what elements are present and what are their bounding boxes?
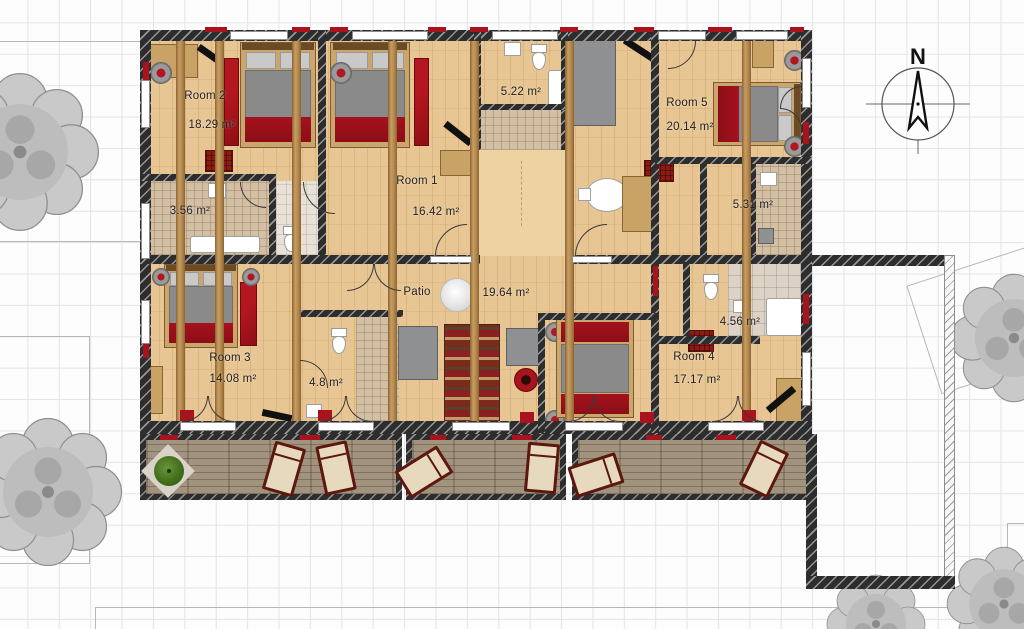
wall-segment [655, 157, 812, 164]
wardrobe[interactable] [572, 40, 616, 126]
window-sill [512, 435, 532, 440]
area-label: 5.22 m² [501, 86, 541, 98]
window-sill [300, 435, 320, 440]
sink[interactable] [760, 172, 777, 186]
window-sill [646, 435, 662, 440]
wall-segment [318, 30, 326, 258]
window-sill [790, 27, 804, 32]
wardrobe[interactable] [150, 366, 163, 414]
round-stool[interactable] [330, 62, 352, 84]
window[interactable] [736, 31, 788, 40]
interior-window[interactable] [430, 256, 472, 263]
wall-segment [293, 310, 403, 317]
window-sill [330, 27, 348, 32]
wall-segment [683, 262, 690, 340]
wall-segment [269, 174, 276, 255]
area-label: 4.56 m² [720, 316, 760, 328]
door-opening[interactable] [318, 422, 374, 431]
area-label: 3.56 m² [170, 205, 210, 217]
tree-icon[interactable] [0, 72, 100, 232]
window-sill [634, 27, 654, 32]
window-sill [470, 27, 488, 32]
wall-segment [140, 174, 276, 181]
window[interactable] [492, 31, 558, 40]
round-stool[interactable] [242, 268, 260, 286]
round-table[interactable] [514, 368, 538, 392]
flower-pot[interactable] [520, 412, 534, 423]
lounge-chair[interactable] [524, 442, 560, 495]
wall-segment [538, 313, 657, 320]
shower-drain[interactable] [758, 228, 774, 244]
beam [388, 41, 397, 421]
wall-segment [140, 255, 480, 264]
counter[interactable] [622, 176, 652, 232]
potted-plant[interactable] [154, 456, 184, 486]
window-sill [292, 27, 310, 32]
toilet[interactable] [530, 44, 548, 70]
flower-pot[interactable] [640, 412, 654, 423]
room-area-label: 20.14 m² [667, 121, 714, 133]
corridor-floor [477, 150, 565, 256]
compass-north-label: N [910, 44, 926, 69]
area-label: 4.8 m² [309, 377, 343, 389]
chair[interactable] [578, 188, 591, 201]
red-door-leaf[interactable] [653, 266, 658, 296]
beam [470, 41, 479, 421]
wall-segment [700, 164, 707, 255]
tree-icon[interactable] [946, 546, 1024, 629]
toilet[interactable] [702, 274, 720, 300]
floorplan-canvas: N [0, 0, 1024, 629]
compass-icon: N [858, 40, 978, 160]
room-area-label: 14.08 m² [210, 373, 257, 385]
door-opening[interactable] [452, 422, 510, 431]
entry-tile-floor [477, 110, 565, 150]
window[interactable] [141, 203, 150, 259]
room-area-label: 16.42 m² [413, 206, 460, 218]
sofa[interactable] [398, 326, 438, 380]
radiator[interactable] [803, 122, 809, 144]
room-area-label: 18.29 m² [189, 119, 236, 131]
wall-segment [538, 313, 545, 433]
courtyard-wall-bottom [806, 576, 955, 589]
door-opening[interactable] [565, 422, 623, 431]
room-area-label: 17.17 m² [674, 374, 721, 386]
window[interactable] [141, 300, 150, 344]
room-name-label: Patio [403, 286, 430, 298]
room-name-label: Room 1 [396, 175, 437, 187]
room-name-label: Room 2 [184, 90, 225, 102]
bedside-rug[interactable] [224, 58, 239, 146]
window-sill [708, 27, 732, 32]
bedside-rug[interactable] [414, 58, 429, 146]
courtyard-wall-left [806, 434, 817, 589]
window[interactable] [141, 80, 150, 128]
sink[interactable] [504, 42, 521, 56]
toilet[interactable] [330, 328, 348, 354]
window-sill [716, 435, 736, 440]
room-area-label: 19.64 m² [483, 287, 530, 299]
round-stool[interactable] [152, 268, 170, 286]
armchair[interactable] [506, 328, 540, 366]
window[interactable] [658, 31, 706, 40]
bathtub[interactable] [766, 298, 802, 336]
double-bed[interactable] [330, 42, 410, 148]
bedside-rug[interactable] [240, 282, 257, 346]
round-rug[interactable] [440, 278, 474, 312]
wall-segment [651, 30, 659, 255]
radiator[interactable] [803, 294, 809, 324]
area-label: 5.31 m² [733, 199, 773, 211]
window-sill [160, 435, 178, 440]
bathtub[interactable] [190, 236, 260, 253]
window[interactable] [352, 31, 428, 40]
interior-window[interactable] [572, 256, 612, 263]
double-bed[interactable] [240, 42, 316, 148]
window[interactable] [802, 352, 811, 406]
room-name-label: Room 3 [209, 352, 250, 364]
desk[interactable] [440, 150, 474, 176]
wall-segment [474, 104, 568, 110]
courtyard-wall-right [944, 255, 955, 589]
window-sill [560, 27, 578, 32]
room-name-label: Room 5 [666, 97, 707, 109]
window-sill [430, 435, 446, 440]
window-sill [428, 27, 446, 32]
window[interactable] [802, 58, 811, 108]
window-sill [205, 27, 227, 32]
round-stool[interactable] [150, 62, 172, 84]
room-name-label: Room 4 [673, 351, 714, 363]
window[interactable] [230, 31, 288, 40]
beam [742, 41, 751, 421]
beam [565, 41, 574, 421]
courtyard-wall-top [812, 255, 944, 266]
door-opening[interactable] [180, 422, 236, 431]
tree-icon[interactable] [949, 273, 1024, 403]
door-opening[interactable] [708, 422, 764, 431]
tree-icon[interactable] [0, 417, 123, 567]
